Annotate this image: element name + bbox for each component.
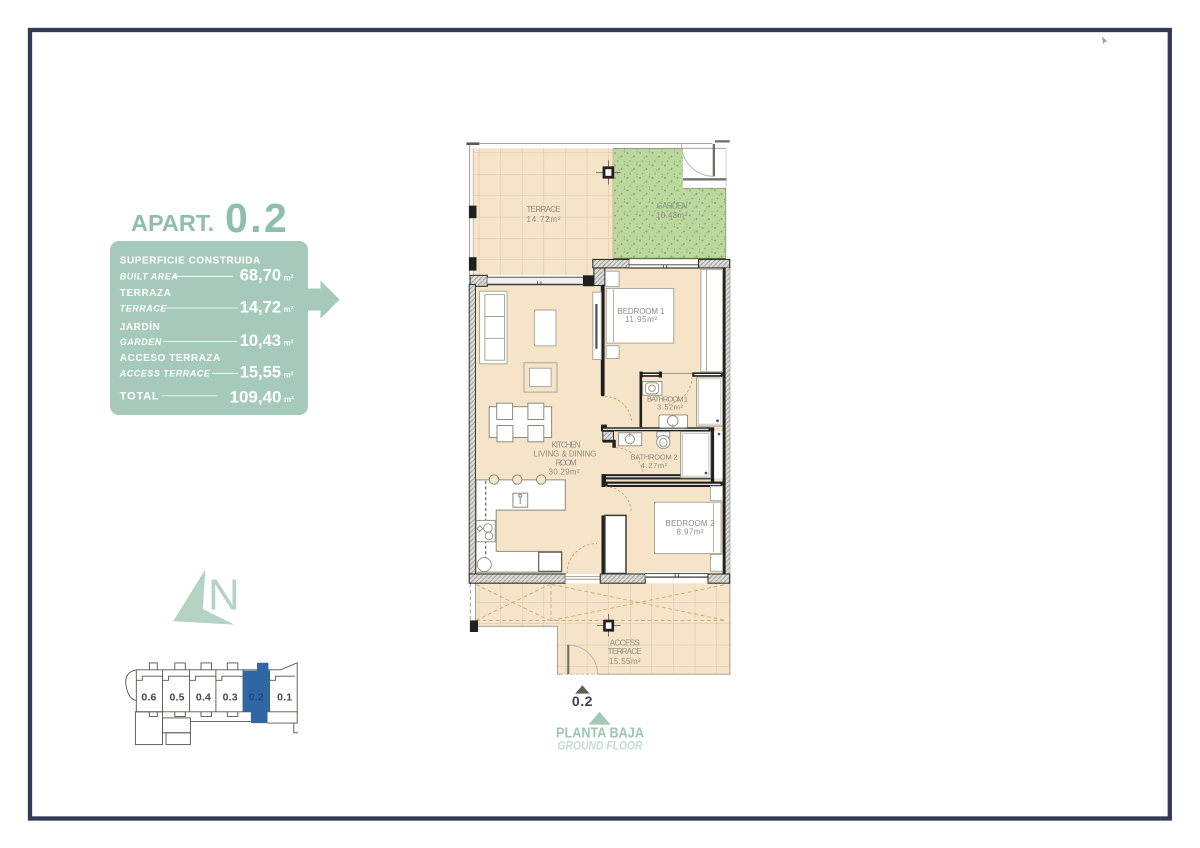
svg-text:15.55m²: 15.55m² [609,657,641,666]
svg-text:APART.: APART. [131,210,214,236]
svg-text:TERRACE: TERRACE [527,205,561,214]
svg-text:m²: m² [284,339,294,348]
svg-text:68,70: 68,70 [240,267,281,285]
svg-text:TERRAZA: TERRAZA [120,288,172,299]
svg-text:0.2: 0.2 [572,693,593,709]
svg-text:KITCHEN: KITCHEN [552,440,581,449]
svg-text:BUILT AREA: BUILT AREA [120,272,179,282]
svg-text:PLANTA BAJA: PLANTA BAJA [556,726,644,742]
svg-text:ACCESS TERRACE: ACCESS TERRACE [119,369,211,379]
svg-text:N: N [208,571,240,620]
svg-text:0.1: 0.1 [277,692,292,704]
svg-text:0.2: 0.2 [225,195,289,241]
svg-text:8.97m²: 8.97m² [677,527,704,536]
svg-text:0.3: 0.3 [223,692,238,704]
svg-text:11.95m²: 11.95m² [625,315,657,324]
svg-text:0.4: 0.4 [196,692,211,704]
svg-text:30.29m²: 30.29m² [549,468,580,477]
svg-text:ROOM: ROOM [556,459,577,468]
svg-text:109,40: 109,40 [230,387,282,406]
svg-text:4.27m²: 4.27m² [641,461,668,470]
svg-text:3.52m²: 3.52m² [657,403,684,412]
svg-text:TOTAL: TOTAL [120,390,160,402]
svg-text:ACCESO TERRAZA: ACCESO TERRAZA [120,353,221,364]
svg-text:14.72m²: 14.72m² [527,215,561,224]
svg-text:10,43: 10,43 [240,332,281,350]
svg-text:10.43m²: 10.43m² [656,211,687,220]
svg-text:15,55: 15,55 [240,364,281,382]
svg-text:0.6: 0.6 [141,692,156,704]
svg-text:14,72: 14,72 [240,298,281,316]
svg-text:TERRACE: TERRACE [608,647,642,656]
svg-text:GROUND FLOOR: GROUND FLOOR [558,740,644,752]
svg-text:0.2: 0.2 [249,692,264,704]
svg-text:JARDÍN: JARDÍN [120,320,161,333]
svg-text:0.5: 0.5 [170,692,185,704]
svg-text:GARDEN: GARDEN [120,337,162,347]
svg-text:m²: m² [284,305,294,314]
svg-text:LIVING & DINING: LIVING & DINING [534,450,597,459]
svg-text:SUPERFICIE CONSTRUIDA: SUPERFICIE CONSTRUIDA [120,255,261,266]
svg-text:m²: m² [284,370,294,379]
svg-text:BATHROOM 2: BATHROOM 2 [631,452,678,461]
svg-text:m²: m² [284,273,294,282]
svg-text:m²: m² [284,395,294,404]
svg-text:GARDEN: GARDEN [657,201,688,210]
svg-text:TERRACE: TERRACE [120,303,167,313]
